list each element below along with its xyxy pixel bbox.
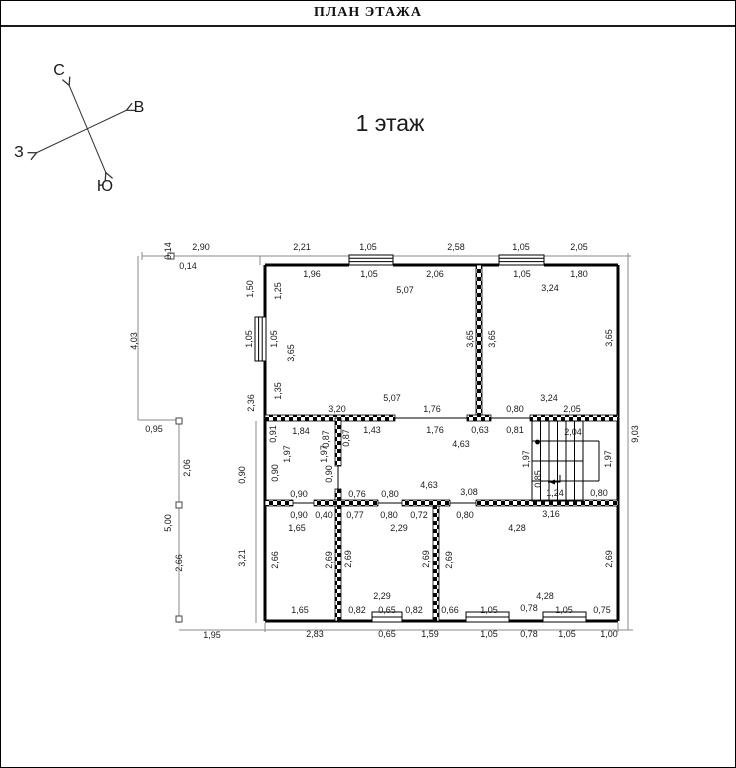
compass-east-label: В xyxy=(134,99,145,116)
dim-label: 0,90 xyxy=(324,465,334,483)
page-title: ПЛАН ЭТАЖА xyxy=(314,5,422,21)
dim-label: 5,00 xyxy=(163,514,173,532)
dim-label: 0,90 xyxy=(270,464,280,482)
dim-label: 2,06 xyxy=(182,459,192,477)
dim-label: 1,95 xyxy=(203,630,221,640)
dim-label: 2,69 xyxy=(324,551,334,569)
dim-label: 0,75 xyxy=(593,605,611,615)
page: ПЛАН ЭТАЖА 1 этаж С В З Ю xyxy=(0,0,736,768)
dim-label: 2,04 xyxy=(564,427,582,437)
dim-label: 0,40 xyxy=(315,510,333,520)
dim-label: 0,80 xyxy=(380,510,398,520)
dim-label: 4,63 xyxy=(420,480,438,490)
dim-label: 2,29 xyxy=(390,523,408,533)
dim-label: 0,90 xyxy=(290,510,308,520)
dim-label: 1,76 xyxy=(423,404,441,414)
dim-label: 2,66 xyxy=(174,554,184,572)
dim-label: 0,14 xyxy=(163,242,173,260)
dim-label: 1,76 xyxy=(426,425,444,435)
dim-label: 0,80 xyxy=(590,488,608,498)
dim-label: 3,20 xyxy=(328,404,346,414)
dim-label: 1,05 xyxy=(269,330,279,348)
window xyxy=(255,317,266,361)
floor-label: 1 этаж xyxy=(356,110,425,136)
dim-label: 0,63 xyxy=(471,425,489,435)
dim-label: 1,65 xyxy=(288,523,306,533)
dim-label: 3,24 xyxy=(540,393,558,403)
dim-origin-marker xyxy=(176,418,182,424)
dim-label: 1,84 xyxy=(292,426,310,436)
dim-label: 2,90 xyxy=(192,242,210,252)
dim-label: 1,05 xyxy=(244,330,254,348)
dim-label: 4,63 xyxy=(452,439,470,449)
dim-label: 0,85 xyxy=(533,470,543,488)
dim-label: 0,77 xyxy=(346,510,364,520)
dim-label: 5,07 xyxy=(396,285,414,295)
stair-start-dot xyxy=(535,440,540,445)
dim-label: 2,66 xyxy=(270,551,280,569)
dim-label: 0,66 xyxy=(441,605,459,615)
dim-label: 2,29 xyxy=(373,591,391,601)
dim-label: 9,03 xyxy=(630,425,640,443)
dim-label: 0,90 xyxy=(237,466,247,484)
dim-label: 3,65 xyxy=(487,330,497,348)
floor-plan-drawing: 1 этаж С В З Ю xyxy=(1,26,735,767)
interior-walls xyxy=(265,265,618,621)
dim-label: 0,80 xyxy=(506,404,524,414)
dim-label: 4,03 xyxy=(129,332,139,350)
dim-label: 3,21 xyxy=(237,549,247,567)
dim-label: 2,21 xyxy=(293,242,311,252)
dim-label: 0,82 xyxy=(405,605,423,615)
dim-label: 1,97 xyxy=(319,445,329,463)
exterior-walls xyxy=(265,265,618,621)
dim-label: 1,96 xyxy=(303,269,321,279)
stair-arrow-head xyxy=(549,480,555,485)
dim-label: 3,65 xyxy=(604,329,614,347)
dim-label: 0,65 xyxy=(378,605,396,615)
dim-label: 1,59 xyxy=(421,629,439,639)
dim-label: 0,90 xyxy=(290,489,308,499)
dim-label: 1,25 xyxy=(273,282,283,300)
dim-label: 0,80 xyxy=(456,510,474,520)
dim-origin-marker xyxy=(176,616,182,622)
dim-label: 1,05 xyxy=(360,269,378,279)
dim-label: 1,80 xyxy=(570,269,588,279)
dim-label: 2,05 xyxy=(570,242,588,252)
dim-label: 1,97 xyxy=(603,450,613,468)
dim-label: 0,95 xyxy=(145,424,163,434)
dim-label: 1,05 xyxy=(558,629,576,639)
dim-label: 3,16 xyxy=(542,509,560,519)
dim-label: 0,78 xyxy=(520,629,538,639)
dim-label: 1,24 xyxy=(546,488,564,498)
dim-label: 1,05 xyxy=(480,629,498,639)
dim-label: 1,97 xyxy=(521,450,531,468)
dim-label: 0,91 xyxy=(268,425,278,443)
dim-label: 2,69 xyxy=(444,551,454,569)
dim-label: 1,05 xyxy=(359,242,377,252)
dim-label: 2,83 xyxy=(306,629,324,639)
dim-label: 1,05 xyxy=(480,605,498,615)
compass-north-label: С xyxy=(53,62,65,79)
dim-label: 0,87 xyxy=(321,430,331,448)
dim-label: 3,65 xyxy=(286,344,296,362)
dim-label: 0,65 xyxy=(378,629,396,639)
dim-label: 1,97 xyxy=(282,445,292,463)
dim-label: 1,05 xyxy=(512,242,530,252)
dim-label: 1,35 xyxy=(273,382,283,400)
dim-label: 2,05 xyxy=(563,404,581,414)
dim-label: 2,06 xyxy=(426,269,444,279)
dim-label: 4,28 xyxy=(536,591,554,601)
dim-label: 1,05 xyxy=(555,605,573,615)
dim-label: 0,78 xyxy=(520,603,538,613)
dim-label: 2,69 xyxy=(343,550,353,568)
compass: С В З Ю xyxy=(14,62,144,195)
dim-label: 2,69 xyxy=(421,550,431,568)
dim-origin-marker xyxy=(176,502,182,508)
dim-label: 5,07 xyxy=(383,393,401,403)
dim-label: 1,43 xyxy=(363,425,381,435)
dim-label: 0,72 xyxy=(410,510,428,520)
dim-label: 1,65 xyxy=(291,605,309,615)
title-bar: ПЛАН ЭТАЖА xyxy=(1,1,735,27)
dim-label: 0,14 xyxy=(179,261,197,271)
dim-label: 4,28 xyxy=(508,523,526,533)
window xyxy=(499,255,544,265)
dim-label: 1,05 xyxy=(513,269,531,279)
compass-west-label: З xyxy=(14,144,24,161)
dim-label: 0,87 xyxy=(341,429,351,447)
dim-label: 2,36 xyxy=(246,394,256,412)
dim-label: 3,65 xyxy=(465,330,475,348)
dim-label: 3,24 xyxy=(541,283,559,293)
dim-label: 2,58 xyxy=(447,242,465,252)
dim-label: 2,69 xyxy=(604,550,614,568)
compass-south-label: Ю xyxy=(97,178,113,195)
dim-label: 0,82 xyxy=(348,605,366,615)
dimension-lines xyxy=(138,252,633,632)
dim-label: 0,81 xyxy=(506,425,524,435)
window xyxy=(349,255,393,265)
compass-we-arrow xyxy=(36,110,127,153)
dim-label: 0,76 xyxy=(348,489,366,499)
dim-label: 1,00 xyxy=(600,629,618,639)
dim-label: 0,80 xyxy=(381,489,399,499)
dim-label: 1,50 xyxy=(245,280,255,298)
dim-label: 3,08 xyxy=(460,487,478,497)
